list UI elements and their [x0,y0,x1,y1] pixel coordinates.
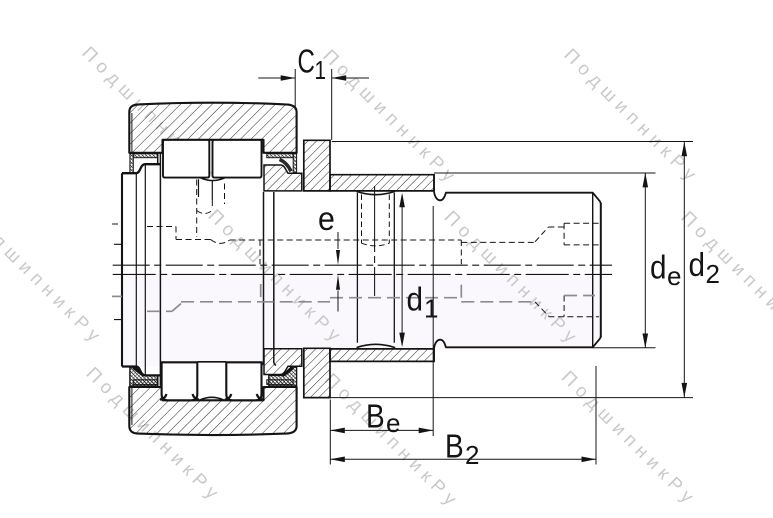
svg-text:e: e [318,200,335,237]
svg-text:C: C [298,44,315,81]
svg-text:1: 1 [315,56,327,85]
svg-text:2: 2 [465,440,479,470]
svg-text:1: 1 [424,294,438,324]
svg-text:B: B [366,398,385,435]
svg-text:d: d [689,247,706,284]
svg-text:B: B [445,428,464,465]
svg-text:d: d [407,281,424,318]
svg-text:d: d [650,249,667,286]
svg-text:e: e [667,261,681,291]
svg-text:2: 2 [706,259,720,289]
svg-text:e: e [386,408,400,438]
